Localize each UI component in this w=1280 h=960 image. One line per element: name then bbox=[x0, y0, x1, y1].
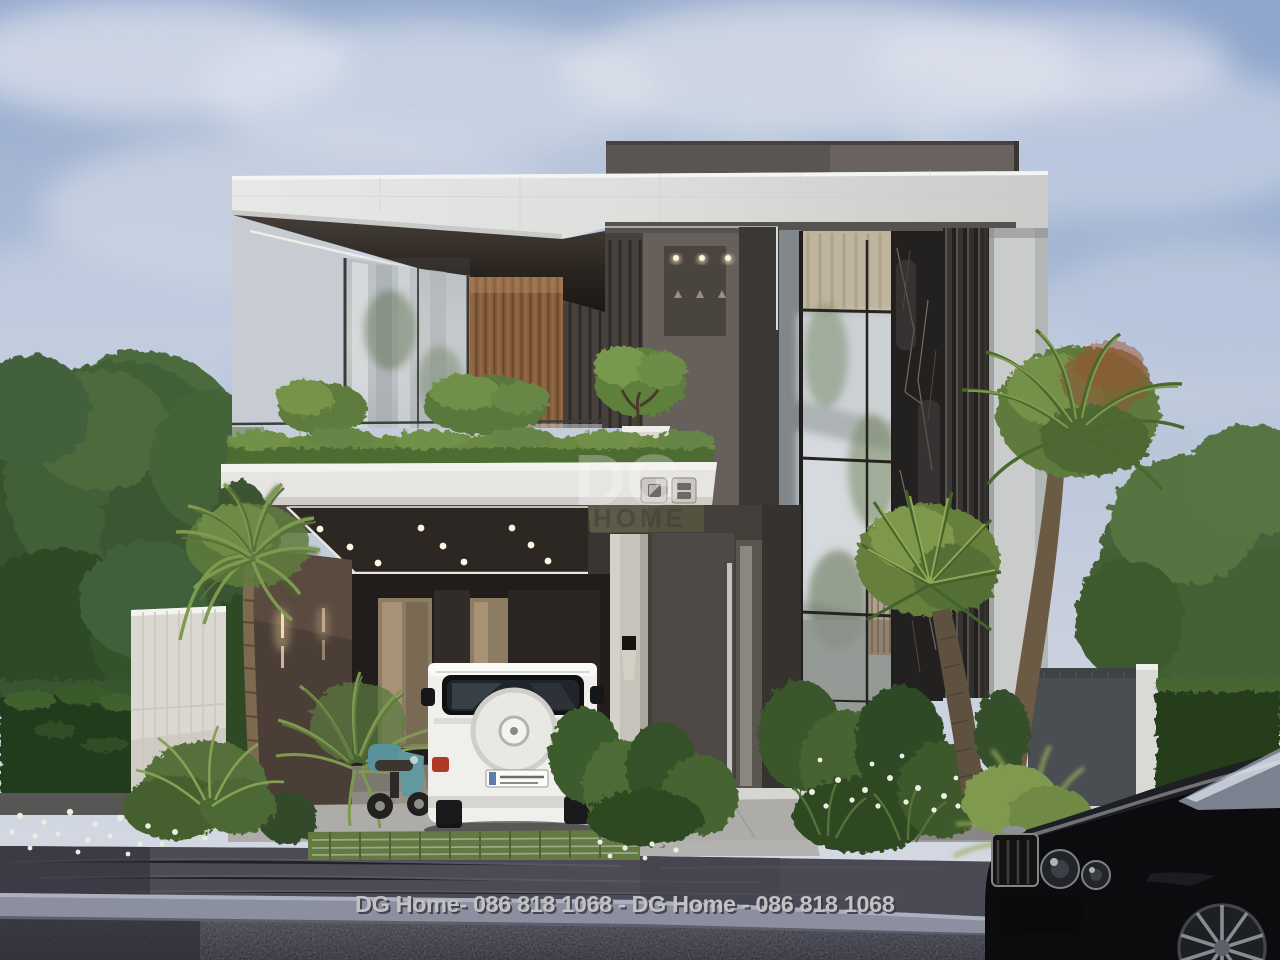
svg-text:DG Home- 086 818 1068 - DG Hom: DG Home- 086 818 1068 - DG Home - 086 81… bbox=[355, 891, 895, 917]
svg-text:HOME: HOME bbox=[593, 503, 687, 533]
